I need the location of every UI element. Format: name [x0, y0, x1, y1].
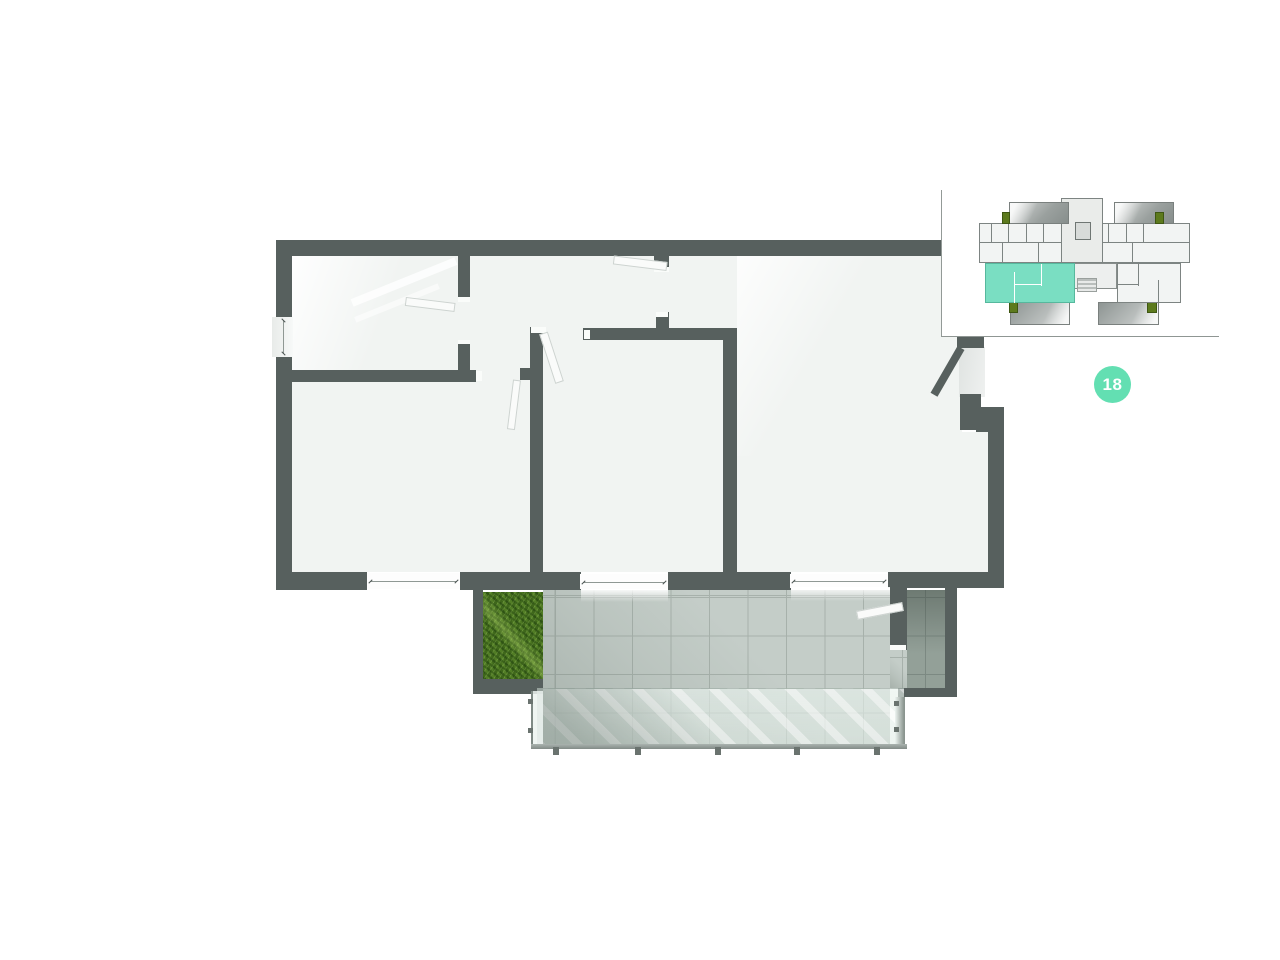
- keyplan-wall-line: [1002, 243, 1003, 263]
- floor-main: [292, 256, 962, 572]
- rail-post: [874, 747, 880, 755]
- keyplan-wall-line: [1118, 284, 1138, 285]
- rail-post: [894, 701, 899, 706]
- window-bottom-right: [790, 574, 888, 588]
- keyplan-unit-right: [1117, 263, 1181, 303]
- wall-entry-top: [957, 337, 984, 348]
- window-frame-line: [793, 581, 885, 582]
- wall-terrace-right: [945, 588, 957, 697]
- keyplan-plant-bottom-left: [1009, 302, 1018, 313]
- keyplan-unit-room-line: [1014, 284, 1042, 285]
- keyplan-wall-line: [1126, 223, 1127, 243]
- wall-bottom-3: [668, 572, 791, 590]
- keyplan-wall-line: [1143, 223, 1144, 243]
- window-bottom-middle: [580, 574, 668, 589]
- window-frame-line: [283, 320, 284, 354]
- keyplan: [941, 190, 1219, 337]
- keyplan-unit-highlight[interactable]: [985, 263, 1075, 303]
- keyplan-unit-room-line: [1041, 264, 1042, 286]
- balcony-passage-tiles: [890, 650, 907, 688]
- wall-room1-right-lower: [458, 341, 470, 370]
- wall-bottom-2: [460, 572, 581, 590]
- keyplan-terrace-top-right: [1114, 202, 1174, 224]
- keyplan-terrace-bottom-left: [1010, 302, 1070, 325]
- wall-left-upper: [276, 240, 292, 317]
- door-frame-cap: [458, 297, 470, 302]
- terrace-dark-tiles: [907, 590, 945, 688]
- entry-niche: [959, 347, 985, 397]
- wall-left-lower: [276, 357, 292, 590]
- keyplan-wall-line: [1158, 280, 1159, 303]
- keyplan-wall-line: [1103, 242, 1190, 243]
- keyplan-plant-top-left: [1002, 212, 1010, 224]
- wall-room1-bottom: [292, 370, 476, 382]
- wall-bottom-1: [276, 572, 367, 590]
- keyplan-stairs: [1077, 278, 1097, 292]
- keyplan-wall-line: [1138, 264, 1139, 286]
- window-left: [272, 317, 293, 357]
- window-bottom-left: [367, 573, 460, 589]
- keyplan-plant-top-right: [1155, 212, 1164, 224]
- floor-right-extension: [962, 432, 989, 572]
- keyplan-terrace-top-left: [1009, 202, 1069, 224]
- wall-balcony-divider: [890, 588, 907, 650]
- door-frame-cap: [584, 330, 590, 339]
- wall-room1-right-upper: [458, 256, 470, 301]
- wall-right: [988, 430, 1004, 588]
- keyplan-wall-line: [1043, 223, 1044, 243]
- keyplan-wall-line: [1132, 243, 1133, 263]
- keyplan-unit-room-line: [1014, 272, 1015, 303]
- keyplan-wall-line: [979, 242, 1061, 243]
- keyplan-wall-line: [991, 223, 992, 243]
- wall-middle: [530, 327, 543, 572]
- wall-room2-top: [583, 328, 737, 340]
- door-frame-cap: [458, 340, 470, 344]
- rail-post: [635, 747, 641, 755]
- door-frame-cap: [476, 371, 482, 381]
- window-frame-line: [583, 582, 665, 583]
- rail-post: [794, 747, 800, 755]
- keyplan-wall-line: [1026, 223, 1027, 243]
- keyplan-elevator: [1075, 222, 1091, 240]
- floorplan-canvas: 18: [0, 0, 1280, 960]
- keyplan-wall-line: [1008, 223, 1009, 243]
- unit-badge-label: 18: [1103, 375, 1123, 395]
- rail-post: [528, 728, 533, 733]
- wall-middle-stub: [520, 368, 531, 380]
- rail-post: [553, 747, 559, 755]
- unit-badge[interactable]: 18: [1094, 366, 1131, 403]
- rail-post: [715, 747, 721, 755]
- rail-post: [528, 699, 533, 704]
- door-frame-cap: [656, 312, 668, 317]
- wall-room2-right: [723, 340, 737, 572]
- wall-right-upper: [960, 394, 981, 430]
- glass-balustrade: [537, 688, 904, 747]
- grass-patch: [483, 592, 543, 679]
- keyplan-wall-line: [1108, 223, 1109, 243]
- wall-terrace-bottom: [898, 688, 957, 697]
- wall-bottom-4: [888, 572, 1004, 588]
- window-frame-line: [370, 581, 457, 582]
- rail-post: [894, 727, 899, 732]
- wall-top: [276, 240, 945, 256]
- keyplan-wall-line: [1038, 243, 1039, 263]
- keyplan-plant-bottom-right: [1147, 302, 1157, 313]
